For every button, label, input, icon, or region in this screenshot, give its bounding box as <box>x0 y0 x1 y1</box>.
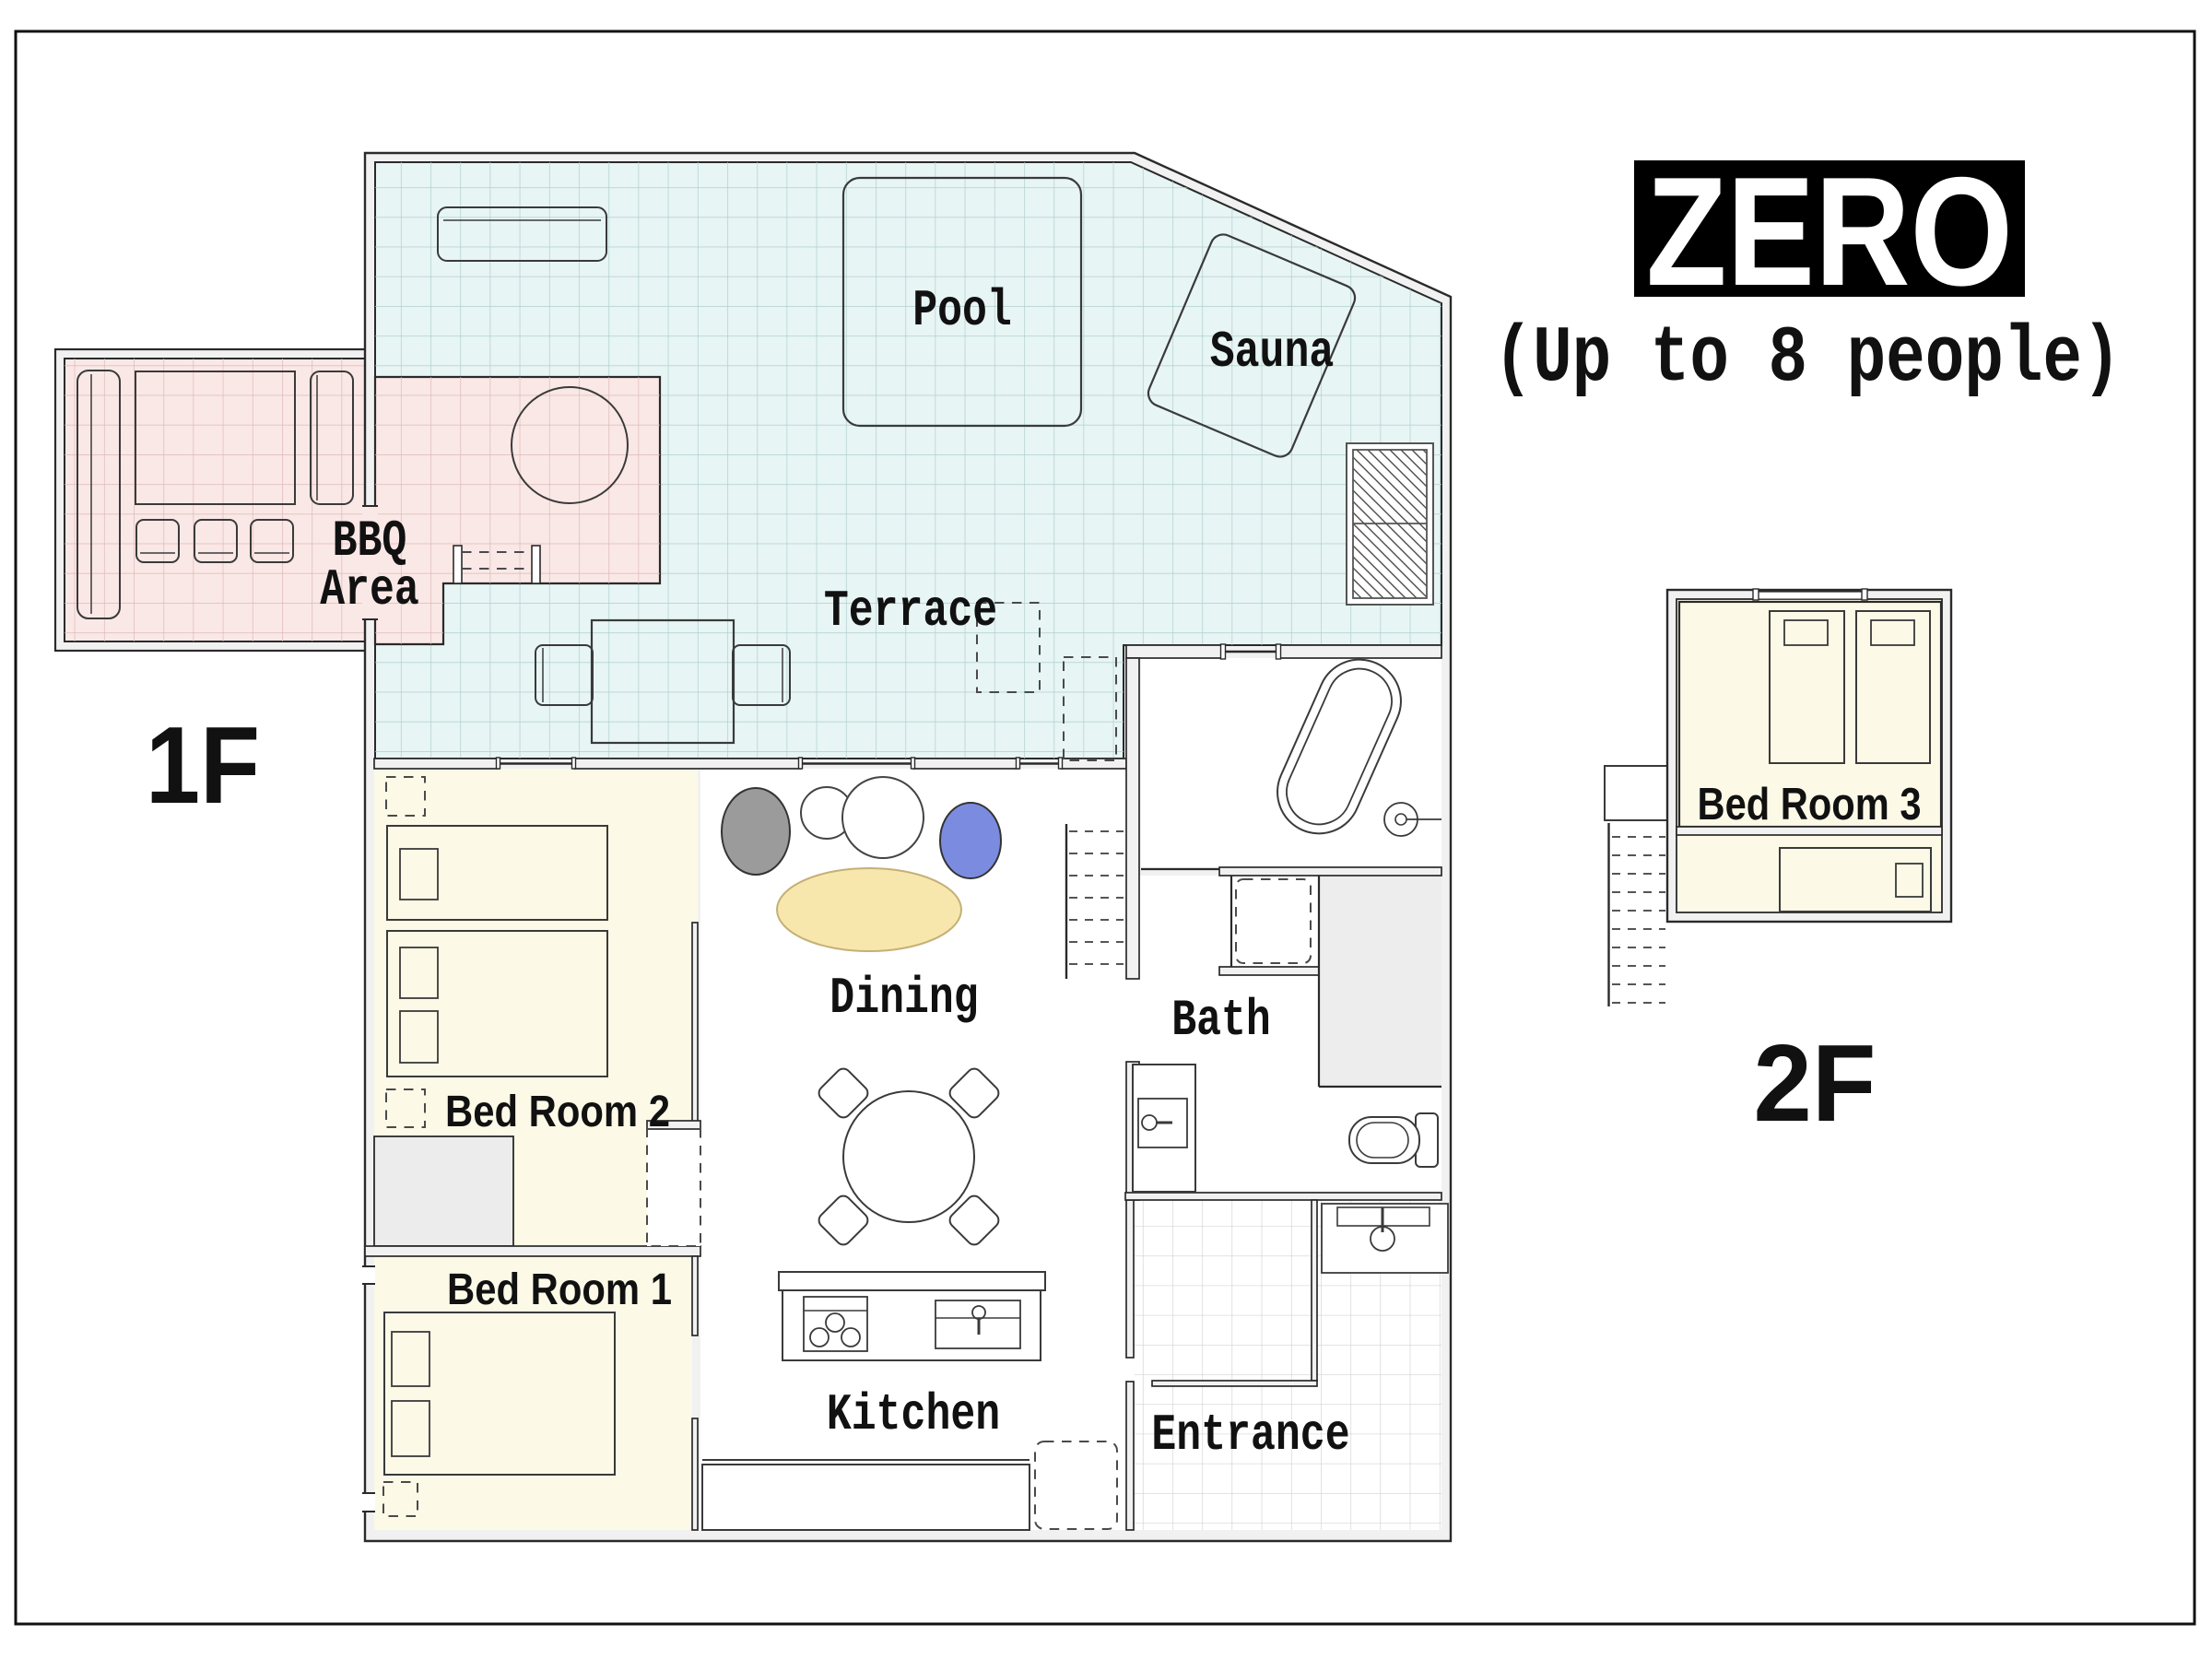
svg-text:Sauna: Sauna <box>1210 323 1335 382</box>
svg-text:Pool: Pool <box>912 281 1012 340</box>
svg-text:Dining: Dining <box>829 969 978 1028</box>
svg-text:Entrance: Entrance <box>1151 1406 1349 1465</box>
svg-text:Terrace: Terrace <box>824 582 997 641</box>
svg-text:Kitchen: Kitchen <box>827 1385 1000 1444</box>
svg-text:Bath: Bath <box>1171 991 1271 1050</box>
svg-text:(Up to 8 people): (Up to 8 people) <box>1494 313 2122 404</box>
svg-text:Area: Area <box>320 560 419 619</box>
svg-text:Bed Room 3: Bed Room 3 <box>1698 780 1922 829</box>
svg-text:ZERO: ZERO <box>1646 145 2013 318</box>
svg-text:2F: 2F <box>1754 1022 1877 1145</box>
svg-text:1F: 1F <box>146 704 260 827</box>
svg-text:Bed Room 1: Bed Room 1 <box>447 1265 672 1314</box>
svg-text:Bed Room 2: Bed Room 2 <box>445 1088 670 1136</box>
